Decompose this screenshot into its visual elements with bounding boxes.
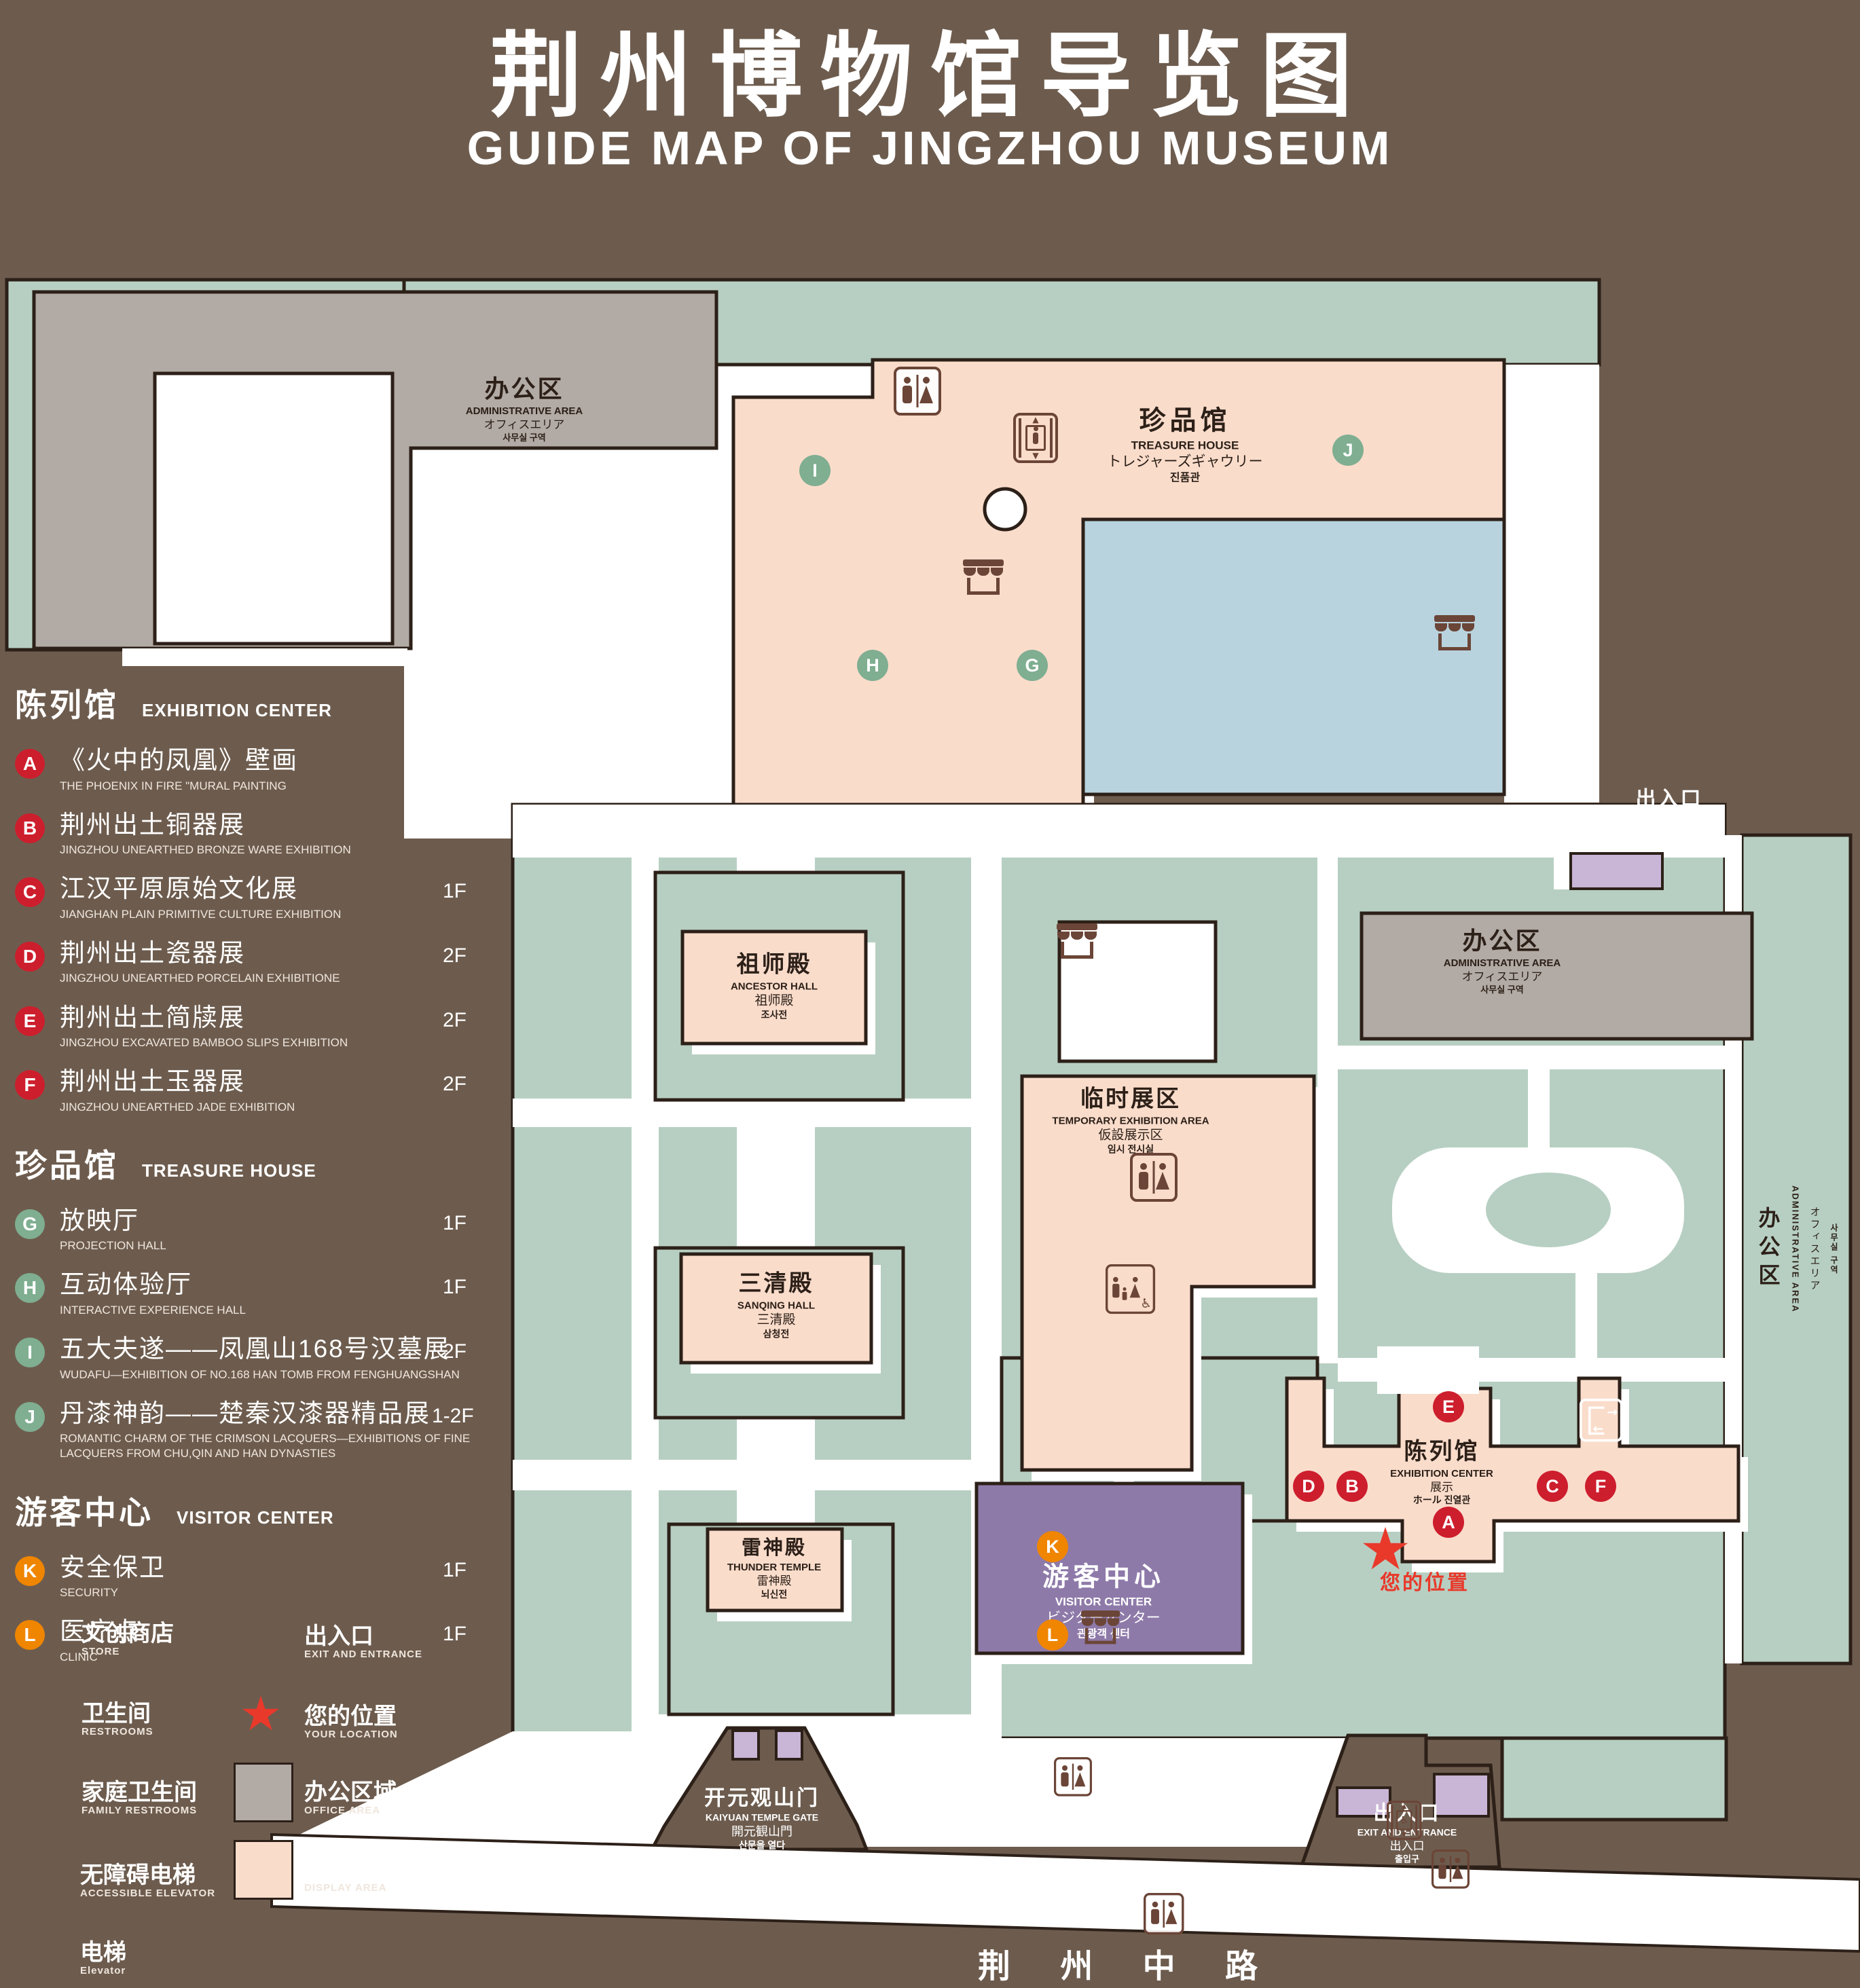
- marker-j: J: [1332, 435, 1364, 466]
- legend-item-e: E 荆州出土简牍展 JINGZHOU EXCAVATED BAMBOO SLIP…: [15, 1004, 503, 1051]
- east-exit-booth: [1571, 853, 1662, 889]
- your-location-legend-label-en: YOUR LOCATION: [304, 1729, 398, 1740]
- restrooms-icon: [1432, 1849, 1470, 1889]
- temporary-area-label: 临时展区 TEMPORARY EXHIBITION AREA 仮設展示区 임시 …: [1052, 1085, 1209, 1156]
- accessible-elevator-label: 无障碍电梯: [80, 1856, 196, 1890]
- marker-h: H: [857, 650, 888, 681]
- east-exit-label: 出入口 EXIT AND ENTRANCE 出入口 출입구: [1620, 787, 1719, 851]
- store-label-en: STORE: [81, 1646, 120, 1657]
- display-area-swatch: [234, 1840, 293, 1900]
- elevator-label: 电梯: [80, 1934, 126, 1967]
- page-title: 荆州博物馆导览图: [0, 1, 1860, 135]
- restrooms-icon: [1144, 1893, 1184, 1934]
- jingzhou-middle-road: [272, 1835, 1860, 1951]
- pond-bridge-circle: [985, 489, 1025, 530]
- legend-section-exhibition-center: 陈列馆 EXHIBITION CENTER: [15, 679, 503, 726]
- legend-item-c: C 江汉平原原始文化展 JIANGHAN PLAIN PRIMITIVE CUL…: [15, 875, 503, 922]
- elevator-icon: ▲▼: [1013, 413, 1058, 463]
- legend-item-a: A 《火中的凤凰》壁画 THE PHOENIX IN FIRE "MURAL P…: [15, 746, 503, 794]
- marker-l: L: [1037, 1619, 1068, 1651]
- marker-d: D: [1293, 1471, 1324, 1502]
- admin-courtyard: [155, 373, 393, 644]
- exit-icon: →←: [1580, 1399, 1622, 1441]
- marker-i: I: [799, 455, 831, 486]
- marker-k: K: [1037, 1531, 1068, 1562]
- road-label: 荆 州 中 路: [978, 1939, 1278, 1987]
- pond: [1083, 519, 1504, 794]
- your-location-legend-star-icon: ★: [240, 1690, 282, 1737]
- gate-kiosk-east: [776, 1731, 802, 1759]
- exhibition-center-label: 陈列馆 EXHIBITION CENTER 展示 ホール 진열관: [1390, 1437, 1493, 1507]
- legend-section-treasure-house: 珍品馆 TREASURE HOUSE: [15, 1139, 503, 1186]
- legend-item-f: F 荆州出土玉器展 JINGZHOU UNEARTHED JADE EXHIBI…: [15, 1067, 503, 1115]
- admin-strip-label: 办公区 ADMINISTRATIVE AREA オフィスエリア 사무실 구역: [1743, 842, 1849, 1657]
- restrooms-icon: [894, 367, 941, 416]
- restrooms-icon: [1054, 1757, 1092, 1797]
- restrooms-label-en: RESTROOMS: [81, 1726, 153, 1737]
- legend: 陈列馆 EXHIBITION CENTER A 《火中的凤凰》壁画 THE PH…: [15, 679, 503, 1682]
- admin-east-label: 办公区 ADMINISTRATIVE AREA オフィスエリア 사무실 구역: [1444, 925, 1561, 996]
- page-subtitle: GUIDE MAP OF JINGZHOU MUSEUM: [0, 121, 1860, 175]
- family-restrooms-label-en: FAMILY RESTROOMS: [81, 1805, 197, 1816]
- accessible-elevator-label-en: ACCESSIBLE ELEVATOR: [80, 1888, 215, 1899]
- marker-f: F: [1585, 1471, 1616, 1502]
- legend-item-j: J 丹漆神韵——楚秦汉漆器精品展 ROMANTIC CHARM OF THE C…: [15, 1399, 503, 1462]
- display-area-label: 展示区域: [304, 1851, 397, 1884]
- treasure-house-label: 珍品馆 TREASURE HOUSE トレジャーズギャウリー 진품관: [1108, 405, 1263, 485]
- office-area-swatch: [234, 1763, 293, 1822]
- store-icon: [1434, 615, 1475, 652]
- display-area-label-en: DISPLAY AREA: [304, 1882, 386, 1894]
- office-area-label: 办公区域: [304, 1773, 397, 1807]
- store-icon: [1081, 1610, 1120, 1645]
- legend-item-k: K 安全保卫 SECURITY 1F: [15, 1553, 503, 1601]
- thunder-temple-label: 雷神殿 THUNDER TEMPLE 雷神殿 뇌신전: [727, 1536, 821, 1601]
- your-location-label: 您的位置: [1380, 1566, 1470, 1596]
- store-icon: [1057, 923, 1097, 960]
- marker-a: A: [1433, 1507, 1464, 1538]
- restrooms-icon: [1130, 1153, 1178, 1202]
- exit-label-en: EXIT AND ENTRANCE: [304, 1649, 422, 1660]
- legend-item-d: D 荆州出土瓷器展 JINGZHOU UNEARTHED PORCELAIN E…: [15, 939, 503, 987]
- legend-item-h: H 互动体验厅 INTERACTIVE EXPERIENCE HALL 1F: [15, 1270, 503, 1318]
- admin-northwest-label: 办公区 ADMINISTRATIVE AREA オフィスエリア 사무실 구역: [466, 373, 583, 444]
- marker-e: E: [1433, 1391, 1464, 1422]
- legend-item-i: I 五大夫遂——凤凰山168号汉墓展 WUDAFU—EXHIBITION OF …: [15, 1335, 503, 1382]
- exhibition-icons-pad: [1377, 1346, 1479, 1394]
- store-label: 文创商店: [81, 1615, 174, 1648]
- office-area-label-en: OFFICE AREA: [304, 1805, 380, 1816]
- temple-gate-label: 开元观山门 KAIYUAN TEMPLE GATE 開元観山門 산문을 열다: [704, 1785, 820, 1852]
- your-location-legend-label: 您的位置: [304, 1697, 397, 1731]
- accessible-elevator-icon: ▲▼♿: [1387, 1801, 1421, 1840]
- ancestor-hall-label: 祖师殿 ANCESTOR HALL 祖师殿 조사전: [731, 951, 818, 1022]
- marker-g: G: [1017, 650, 1048, 681]
- path-east-of-treasure: [1504, 365, 1599, 803]
- exit-label: 出入口: [304, 1617, 373, 1651]
- elevator-label-en: Elevator: [80, 1965, 126, 1976]
- family-restrooms-icon: ♿: [1106, 1264, 1155, 1314]
- restrooms-label: 卫生间: [81, 1695, 151, 1728]
- family-restrooms-label: 家庭卫生间: [81, 1773, 197, 1807]
- marker-b: B: [1336, 1471, 1368, 1502]
- green-southeast: [1502, 1738, 1726, 1820]
- gate-kiosk-west: [733, 1731, 759, 1759]
- store-icon: [963, 559, 1004, 596]
- guide-map-poster: 荆州博物馆导览图 GUIDE MAP OF JINGZHOU MUSEUM 办公…: [0, 0, 1860, 1988]
- legend-item-b: B 荆州出土铜器展 JINGZHOU UNEARTHED BRONZE WARE…: [15, 811, 503, 858]
- legend-item-g: G 放映厅 PROJECTION HALL 1F: [15, 1207, 503, 1254]
- legend-section-visitor-center: 游客中心 VISITOR CENTER: [15, 1486, 503, 1533]
- path-under-admin: [122, 648, 407, 666]
- marker-c: C: [1537, 1471, 1568, 1502]
- sanqing-hall-label: 三清殿 SANQING HALL 三清殿 삼청전: [737, 1270, 815, 1341]
